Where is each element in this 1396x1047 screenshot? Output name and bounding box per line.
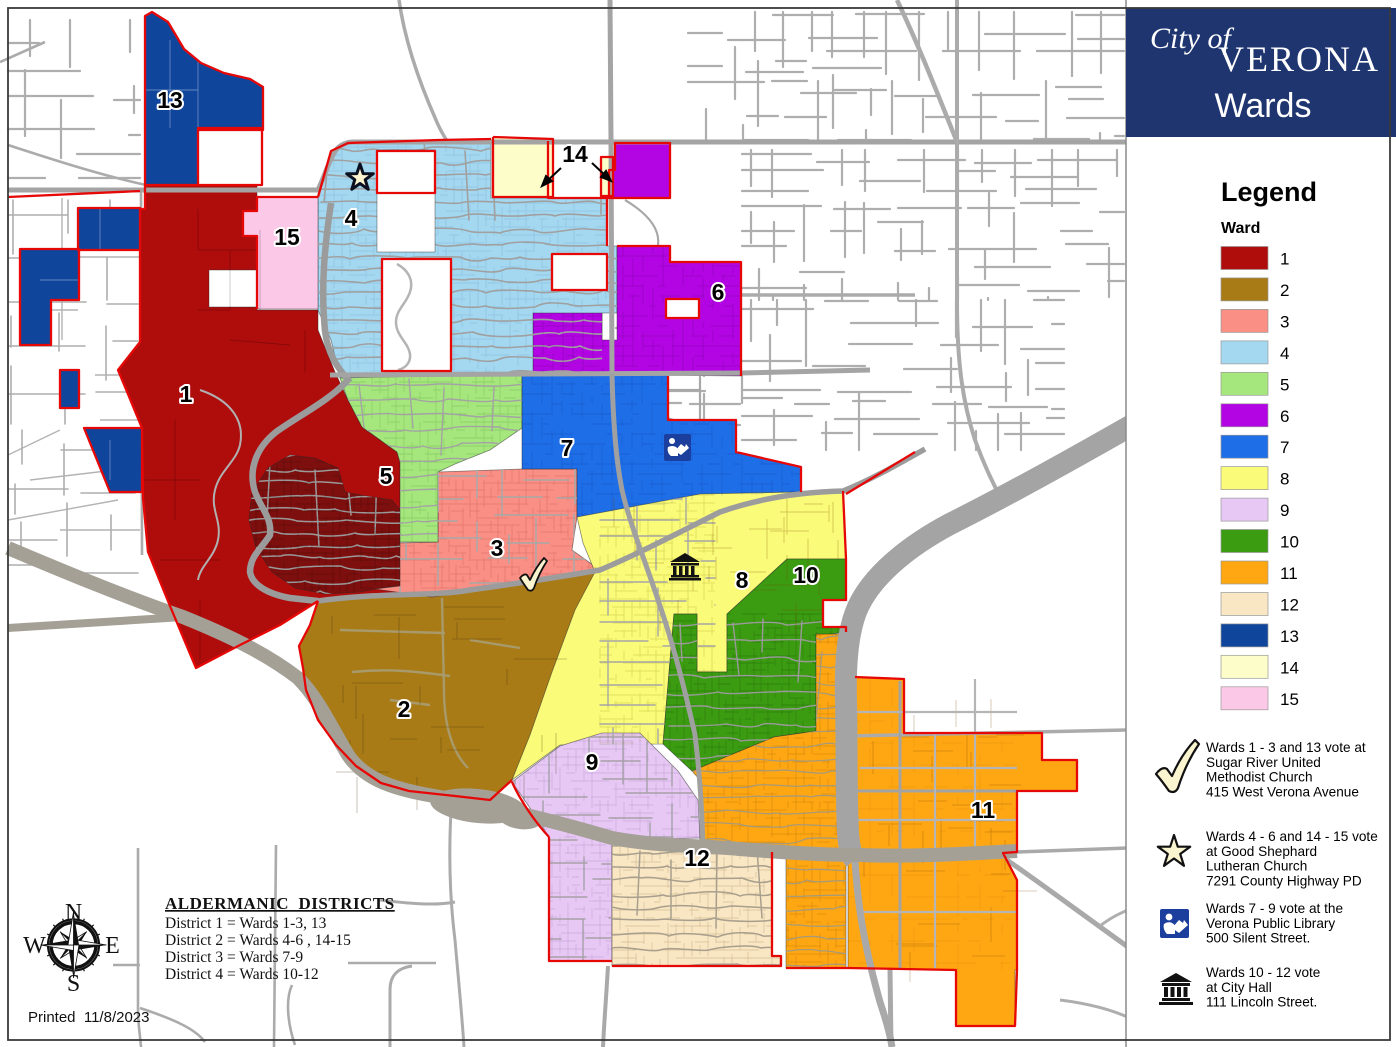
svg-text:6: 6 xyxy=(712,279,725,305)
svg-text:2: 2 xyxy=(1280,281,1289,300)
svg-text:15: 15 xyxy=(1280,690,1299,709)
svg-text:14: 14 xyxy=(562,141,588,167)
svg-text:15: 15 xyxy=(274,224,300,250)
svg-text:Ward: Ward xyxy=(1221,220,1260,237)
svg-text:5: 5 xyxy=(1280,375,1289,394)
svg-text:1: 1 xyxy=(180,381,193,407)
svg-text:W: W xyxy=(23,933,46,959)
svg-text:Printed 11/8/2023: Printed 11/8/2023 xyxy=(28,1009,149,1026)
svg-text:at Good Shephard: at Good Shephard xyxy=(1206,844,1317,859)
svg-text:Verona Public Library: Verona Public Library xyxy=(1206,916,1335,931)
svg-text:11: 11 xyxy=(1280,564,1298,583)
svg-text:Wards 10 - 12 vote: Wards 10 - 12 vote xyxy=(1206,965,1320,980)
svg-text:District 3 = Wards 7-9: District 3 = Wards 7-9 xyxy=(165,949,303,966)
svg-text:10: 10 xyxy=(793,562,819,588)
svg-text:N: N xyxy=(65,900,82,926)
svg-text:Methodist Church: Methodist Church xyxy=(1206,770,1313,785)
svg-text:14: 14 xyxy=(1280,658,1299,677)
svg-text:111 Lincoln Street.: 111 Lincoln Street. xyxy=(1206,995,1317,1010)
svg-text:2: 2 xyxy=(398,696,411,722)
svg-text:7: 7 xyxy=(561,435,574,461)
svg-text:12: 12 xyxy=(1280,596,1299,615)
svg-text:S: S xyxy=(67,971,80,997)
svg-text:Wards 1 - 3 and 13 vote at: Wards 1 - 3 and 13 vote at xyxy=(1206,740,1366,755)
svg-text:9: 9 xyxy=(1280,501,1289,520)
svg-text:Wards: Wards xyxy=(1215,87,1312,125)
svg-text:11: 11 xyxy=(971,797,996,823)
svg-text:Wards 7 - 9 vote at the: Wards 7 - 9 vote at the xyxy=(1206,901,1343,916)
svg-text:7: 7 xyxy=(1280,438,1289,457)
svg-text:Lutheran Church: Lutheran Church xyxy=(1206,859,1307,874)
svg-text:4: 4 xyxy=(1280,344,1289,363)
svg-text:12: 12 xyxy=(684,845,710,871)
svg-text:3: 3 xyxy=(1280,312,1289,331)
svg-text:E: E xyxy=(105,933,120,959)
svg-text:5: 5 xyxy=(380,463,393,489)
svg-text:1: 1 xyxy=(1280,250,1289,269)
svg-text:Sugar River United: Sugar River United xyxy=(1206,755,1321,770)
svg-text:13: 13 xyxy=(157,87,183,113)
svg-text:3: 3 xyxy=(491,535,504,561)
svg-text:District 1 = Wards 1-3, 13: District 1 = Wards 1-3, 13 xyxy=(165,915,327,932)
svg-text:District 2 = Wards 4-6 , 14-15: District 2 = Wards 4-6 , 14-15 xyxy=(165,932,351,949)
svg-text:4: 4 xyxy=(345,205,358,231)
svg-text:7291 County Highway PD: 7291 County Highway PD xyxy=(1206,873,1362,888)
svg-text:District 4 = Wards 10-12: District 4 = Wards 10-12 xyxy=(165,966,319,983)
svg-text:8: 8 xyxy=(1280,470,1289,489)
svg-text:10: 10 xyxy=(1280,533,1299,552)
svg-text:6: 6 xyxy=(1280,407,1289,426)
svg-text:13: 13 xyxy=(1280,627,1299,646)
svg-text:VERONA: VERONA xyxy=(1218,39,1380,79)
svg-text:9: 9 xyxy=(586,749,599,775)
svg-text:ALDERMANIC DISTRICTS: ALDERMANIC DISTRICTS xyxy=(165,894,395,913)
svg-text:8: 8 xyxy=(736,567,749,593)
svg-text:415 West Verona Avenue: 415 West Verona Avenue xyxy=(1206,784,1359,799)
svg-text:Wards 4 - 6 and 14 - 15 vote: Wards 4 - 6 and 14 - 15 vote xyxy=(1206,829,1378,844)
svg-text:at City Hall: at City Hall xyxy=(1206,980,1272,995)
svg-text:500 Silent Street.: 500 Silent Street. xyxy=(1206,931,1310,946)
svg-text:Legend: Legend xyxy=(1221,177,1317,207)
